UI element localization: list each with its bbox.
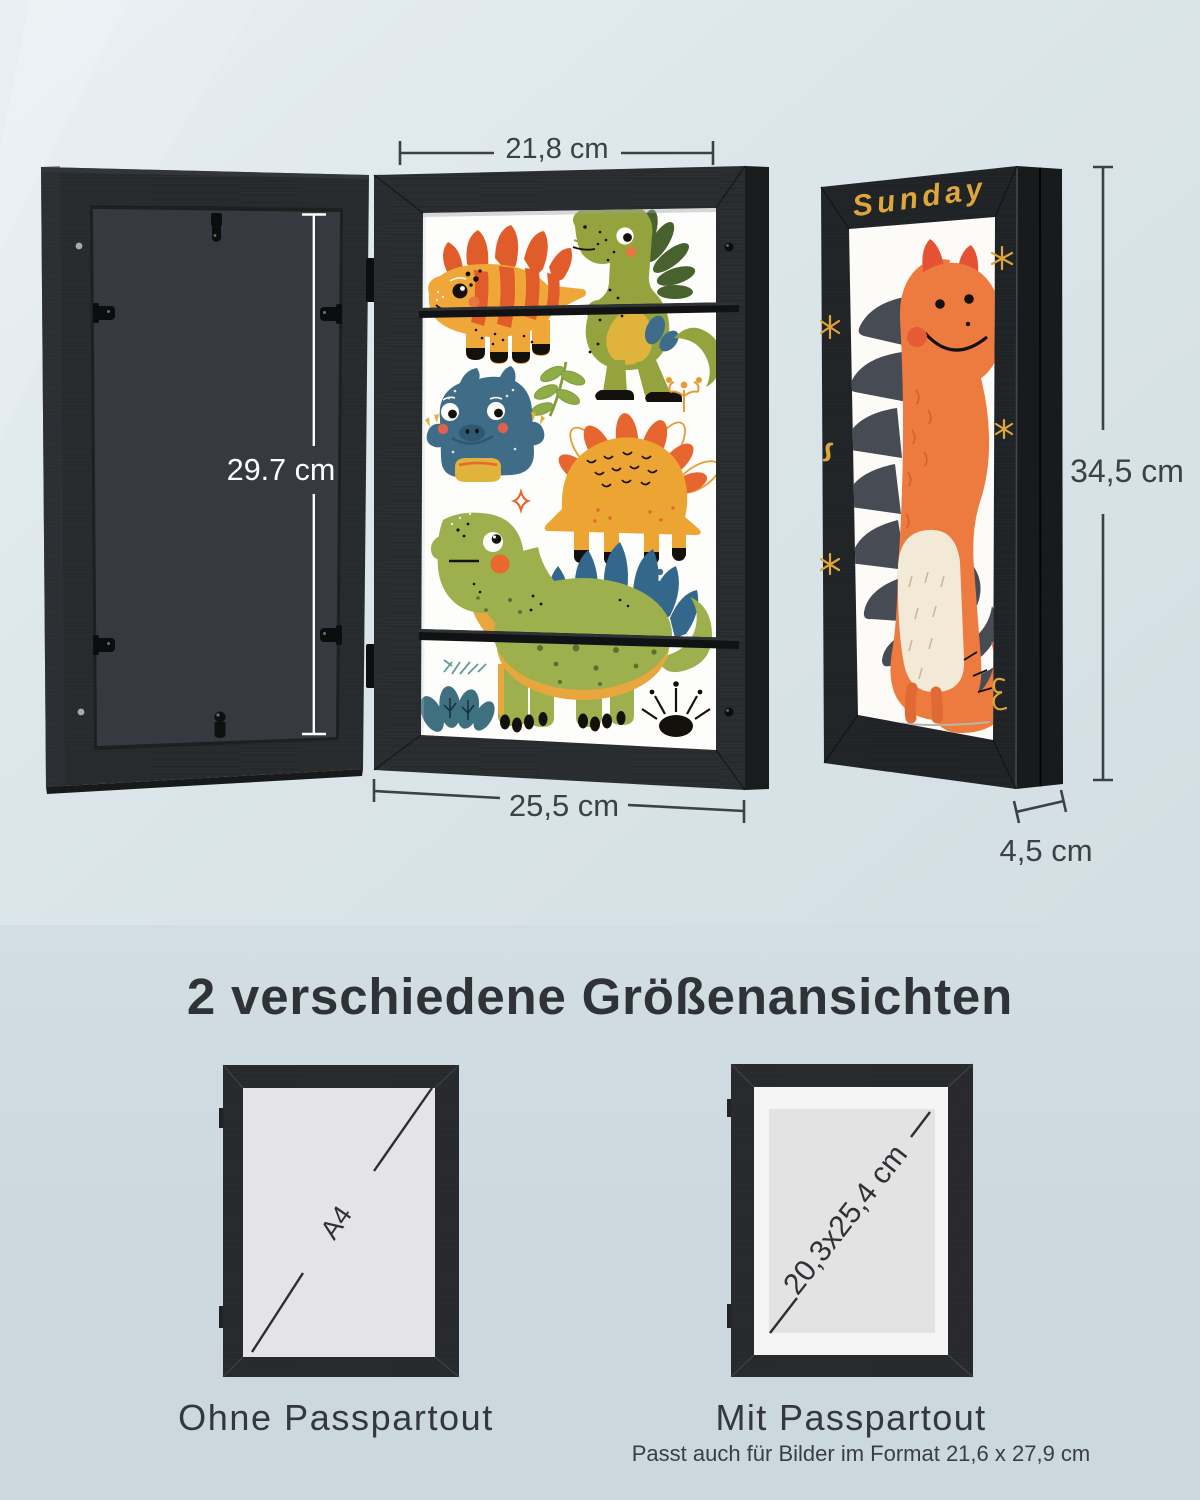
svg-text:34,5 cm: 34,5 cm: [1070, 453, 1184, 489]
svg-text:Mit Passpartout: Mit Passpartout: [715, 1397, 986, 1438]
svg-text:25,5 cm: 25,5 cm: [509, 788, 619, 823]
svg-text:Passt auch für Bilder im Forma: Passt auch für Bilder im Format 21,6 x 2…: [632, 1441, 1091, 1466]
svg-text:4,5 cm: 4,5 cm: [999, 833, 1092, 868]
svg-text:2 verschiedene Größenansichten: 2 verschiedene Größenansichten: [187, 968, 1013, 1025]
svg-text:29.7 cm: 29.7 cm: [227, 453, 336, 487]
svg-text:21,8 cm: 21,8 cm: [505, 133, 608, 165]
svg-text:Ohne Passpartout: Ohne Passpartout: [178, 1397, 494, 1438]
